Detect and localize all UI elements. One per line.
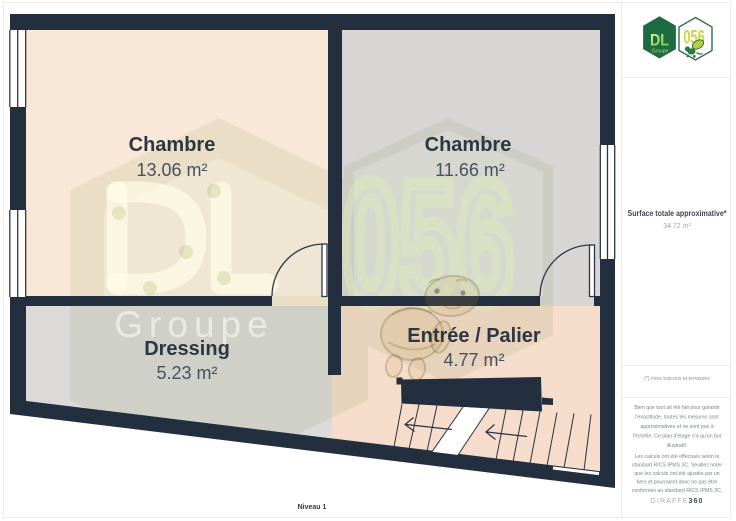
svg-text:13.06 m²: 13.06 m² bbox=[136, 160, 207, 180]
svg-text:Chambre: Chambre bbox=[129, 134, 216, 156]
svg-text:Entrée / Palier: Entrée / Palier bbox=[407, 325, 541, 347]
svg-text:Bien que tout ait été fait pou: Bien que tout ait été fait pour garantir bbox=[634, 405, 720, 411]
svg-text:Les calculs ont été effectués: Les calculs ont été effectués selon le bbox=[635, 454, 720, 460]
svg-text:4.77 m²: 4.77 m² bbox=[443, 350, 504, 370]
svg-text:GIRAFFE360: GIRAFFE360 bbox=[650, 498, 703, 505]
svg-text:l'échelle. Ce plan d'étage n'a: l'échelle. Ce plan d'étage n'a qu'un but bbox=[633, 434, 722, 440]
svg-text:11.66 m²: 11.66 m² bbox=[435, 160, 505, 180]
svg-text:Dressing: Dressing bbox=[144, 338, 230, 360]
svg-text:que les calculs ont été ajusté: que les calculs ont été ajustés par un bbox=[634, 471, 719, 477]
svg-text:illustratif.: illustratif. bbox=[667, 443, 687, 449]
svg-text:standard RICS IPMS 3C. Veuille: standard RICS IPMS 3C. Veuillez noter bbox=[632, 463, 723, 469]
svg-text:conformes au standard RICS IPM: conformes au standard RICS IPMS 3C. bbox=[632, 488, 723, 494]
svg-text:Chambre: Chambre bbox=[425, 134, 512, 156]
svg-text:l'exactitude, toutes les mesur: l'exactitude, toutes les mesures sont bbox=[635, 415, 719, 421]
svg-text:(*) Hors balcons et terrasses: (*) Hors balcons et terrasses bbox=[644, 376, 710, 382]
svg-text:Groupe: Groupe bbox=[652, 49, 669, 55]
svg-text:approximatives et ne sont pas: approximatives et ne sont pas à bbox=[640, 424, 713, 430]
svg-text:5.23 m²: 5.23 m² bbox=[156, 363, 217, 383]
svg-text:tiers et pourraient donc ne pa: tiers et pourraient donc ne pas être bbox=[637, 480, 718, 486]
svg-text:Surface totale approximative*: Surface totale approximative* bbox=[628, 209, 728, 218]
svg-text:Niveau 1: Niveau 1 bbox=[298, 504, 327, 511]
svg-text:DL: DL bbox=[650, 31, 669, 49]
svg-text:34.72 m²: 34.72 m² bbox=[663, 223, 691, 230]
